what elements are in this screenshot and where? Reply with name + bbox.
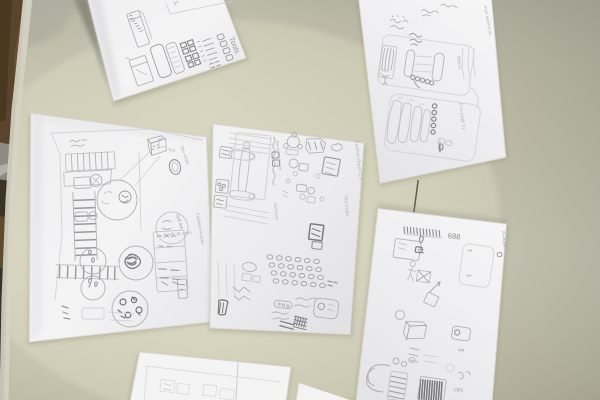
svg-text:Tea: Tea <box>168 147 176 153</box>
svg-text:688: 688 <box>447 231 461 241</box>
svg-text:MA: MA <box>458 347 465 353</box>
